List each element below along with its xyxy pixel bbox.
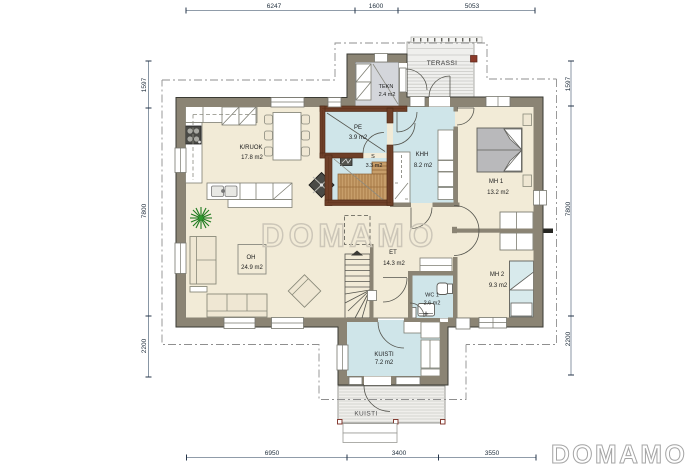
svg-text:WC 1: WC 1	[425, 293, 439, 299]
svg-text:9.3 m2: 9.3 m2	[489, 283, 508, 289]
svg-text:PE: PE	[354, 125, 362, 131]
svg-text:DOMAMO: DOMAMO	[551, 439, 687, 469]
svg-text:14.3 m2: 14.3 m2	[383, 261, 405, 267]
svg-text:7.2 m2: 7.2 m2	[375, 360, 394, 366]
svg-text:3400: 3400	[392, 450, 407, 457]
svg-text:7800: 7800	[141, 203, 148, 218]
svg-text:2.6 m2: 2.6 m2	[424, 301, 441, 307]
svg-text:2200: 2200	[141, 338, 148, 353]
svg-text:OH: OH	[247, 255, 256, 261]
svg-text:KUISTI: KUISTI	[374, 352, 394, 358]
svg-text:DOMAMO: DOMAMO	[261, 218, 438, 254]
svg-text:17.8 m2: 17.8 m2	[241, 155, 263, 161]
svg-text:6950: 6950	[265, 450, 280, 457]
svg-text:6247: 6247	[267, 3, 282, 10]
svg-text:KHH: KHH	[416, 152, 429, 158]
svg-text:S: S	[371, 154, 375, 160]
svg-text:5053: 5053	[465, 3, 480, 10]
svg-text:TEKN: TEKN	[379, 84, 394, 90]
svg-text:TERASSI: TERASSI	[427, 60, 458, 67]
svg-text:24.9 m2: 24.9 m2	[241, 265, 263, 271]
svg-text:1597: 1597	[565, 76, 572, 91]
svg-text:7800: 7800	[565, 201, 572, 216]
svg-text:13.2 m2: 13.2 m2	[487, 190, 509, 196]
svg-text:8.2 m2: 8.2 m2	[414, 163, 433, 169]
svg-text:2200: 2200	[565, 331, 572, 346]
svg-text:2.4 m2: 2.4 m2	[379, 92, 396, 98]
svg-text:K/RUOK: K/RUOK	[239, 145, 262, 151]
svg-text:MH 2: MH 2	[490, 272, 505, 278]
svg-text:3550: 3550	[485, 450, 500, 457]
svg-text:1597: 1597	[141, 77, 148, 92]
svg-text:KUISTI: KUISTI	[354, 411, 377, 418]
svg-text:3.3 m2: 3.3 m2	[366, 163, 383, 169]
svg-text:1600: 1600	[369, 3, 384, 10]
svg-text:MH 1: MH 1	[489, 179, 504, 185]
svg-text:3.9 m2: 3.9 m2	[349, 135, 368, 141]
